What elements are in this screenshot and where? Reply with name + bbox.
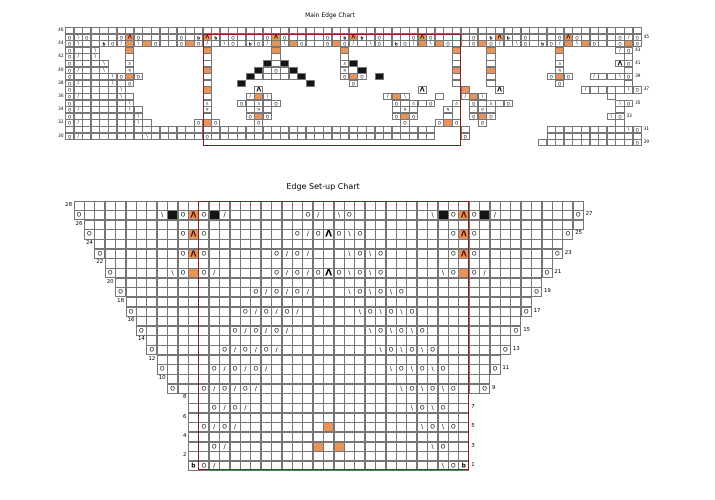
grid-cell-knit (250, 461, 261, 471)
row-number-9: 9 (492, 384, 495, 394)
yarn-over-icon: O (324, 41, 331, 48)
yarn-over-icon: O (479, 120, 486, 127)
grid-cell-knit (240, 461, 251, 471)
row-number-11: 11 (502, 364, 509, 374)
k2tog-icon: / (591, 74, 598, 81)
grid-cell-yarn-over: O (134, 73, 143, 80)
grid-cell-yarn-over: O (263, 113, 272, 120)
bobble-icon: b (393, 41, 400, 48)
row-number-8: 8 (183, 393, 186, 403)
grid-cell-bobble: b (458, 461, 469, 471)
grid-cell-yarn-over: O (490, 364, 501, 374)
grid-cell-yarn-over: O (552, 249, 563, 259)
yarn-over-icon: O (109, 41, 116, 48)
row-number-5: 5 (471, 422, 474, 432)
k2tog-icon: / (384, 94, 391, 101)
grid-cell-yarn-over: O (531, 287, 542, 297)
row-number-39: 39 (635, 73, 640, 80)
grid-cell-knit (426, 133, 435, 140)
yarn-over-icon: O (556, 80, 563, 87)
k2tog-icon: / (616, 47, 623, 54)
k2tog-icon: / (210, 461, 219, 471)
grid-cell-k2tog: / (209, 461, 220, 471)
yarn-over-icon: O (152, 41, 159, 48)
row-number-23: 23 (565, 249, 572, 259)
yarn-over-icon: O (393, 113, 400, 120)
yarn-over-icon: O (543, 268, 552, 278)
yarn-over-icon: O (480, 384, 489, 394)
row-number-22: 22 (96, 258, 103, 268)
grid-cell-yarn-over: O (500, 345, 511, 355)
grid-cell-no-stitch-black (306, 80, 315, 87)
row-number-38: 38 (58, 80, 63, 87)
yarn-over-icon: O (444, 41, 451, 48)
grid-cell-yarn-over: O (542, 268, 553, 278)
grid-cell-yarn-over: O (555, 80, 564, 87)
yarn-over-icon: O (548, 41, 555, 48)
bobble-icon: b (539, 41, 546, 48)
row-number-3: 3 (471, 442, 474, 452)
row-number-37: 37 (644, 86, 649, 93)
yarn-over-icon: O (505, 100, 512, 107)
ssk-icon: \ (513, 41, 520, 48)
grid-cell-knit (344, 461, 355, 471)
row-number-32: 32 (58, 119, 63, 126)
grid-cell-knit (365, 461, 376, 471)
grid-cell-knit (292, 461, 303, 471)
yarn-over-icon: O (272, 100, 279, 107)
yarn-over-icon: O (470, 113, 477, 120)
grid-cell-yarn-over: O (271, 100, 280, 107)
yarn-over-icon: O (247, 113, 254, 120)
yarn-over-icon: O (341, 74, 348, 81)
yarn-over-icon: O (487, 113, 494, 120)
yarn-over-icon: O (565, 74, 572, 81)
grid-cell-knit (354, 461, 365, 471)
grid-cell-gather-top: Δ (452, 100, 461, 107)
row-number-34: 34 (58, 106, 63, 113)
yarn-over-icon: O (401, 41, 408, 48)
row-number-35: 35 (635, 100, 640, 107)
grid-cell-bobble: b (188, 461, 199, 471)
grid-cell-knit (435, 93, 444, 100)
grid-cell-knit (386, 461, 397, 471)
grid-cell-yarn-over: O (409, 113, 418, 120)
yarn-over-icon: O (470, 41, 477, 48)
bobble-icon: b (100, 41, 107, 48)
yarn-over-icon: O (410, 113, 417, 120)
row-number-40: 40 (58, 67, 63, 74)
grid-cell-yarn-over: O (167, 384, 178, 394)
ssk-icon: \ (439, 461, 448, 471)
grid-cell-knit (406, 461, 417, 471)
grid-cell-no-stitch-black (375, 73, 384, 80)
row-number-7: 7 (471, 403, 474, 413)
grid-cell-yarn-over: O (562, 229, 573, 239)
grid-cell-knit (302, 461, 313, 471)
yarn-over-icon: O (522, 307, 531, 317)
yarn-over-icon: O (376, 41, 383, 48)
edge-setup-chart: 28O\OΛO/O/\O\OΛO/O2726OOΛOO/OΛO\OOΛOO252… (74, 201, 584, 471)
yarn-over-icon: O (522, 41, 529, 48)
yarn-over-icon: O (178, 41, 185, 48)
grid-cell-yarn-over: O (633, 139, 642, 146)
row-number-24: 24 (86, 239, 93, 249)
grid-cell-yarn-over: O (349, 80, 358, 87)
setup-chart-title: Edge Set-up Chart (286, 182, 359, 191)
row-number-30: 30 (58, 133, 63, 140)
yarn-over-icon: O (264, 113, 271, 120)
row-number-18: 18 (117, 297, 124, 307)
row-number-27: 27 (586, 210, 593, 220)
row-number-2: 2 (183, 451, 186, 461)
row-number-45: 45 (644, 34, 649, 41)
central-double-decrease-icon: Λ (616, 61, 623, 68)
yarn-over-icon: O (358, 74, 365, 81)
grid-cell-knit (219, 461, 230, 471)
bobble-icon: b (459, 461, 468, 471)
k2tog-icon: / (410, 41, 417, 48)
row-number-43: 43 (635, 47, 640, 54)
yarn-over-icon: O (204, 133, 211, 140)
ssk-icon: \ (221, 41, 228, 48)
yarn-over-icon: O (491, 365, 500, 375)
main-chart-title: Main Edge Chart (305, 12, 355, 19)
yarn-over-icon: O (238, 100, 245, 107)
k2tog-icon: / (582, 87, 589, 94)
grid-cell-yarn-over: O (510, 326, 521, 336)
ssk-icon: \ (573, 41, 580, 48)
row-number-17: 17 (534, 307, 541, 317)
grid-cell-knit (396, 461, 407, 471)
yarn-over-icon: O (563, 230, 572, 240)
bobble-icon: b (247, 41, 254, 48)
row-number-28: 28 (65, 201, 72, 211)
ssk-icon: \ (367, 41, 374, 48)
grid-cell-yarn-over: O (564, 73, 573, 80)
grid-cell-yarn-over: O (125, 80, 134, 87)
grid-cell-knit (427, 461, 438, 471)
ssk-icon: \ (281, 41, 288, 48)
grid-cell-knit (469, 384, 480, 394)
yarn-over-icon: O (255, 41, 262, 48)
central-double-decrease-icon: Λ (496, 87, 503, 94)
yarn-over-icon: O (462, 133, 469, 140)
yarn-over-icon: O (591, 41, 598, 48)
grid-cell-yarn-over: O (504, 100, 513, 107)
row-number-25: 25 (575, 229, 582, 239)
grid-cell-knit (282, 461, 293, 471)
yarn-over-icon: O (511, 326, 520, 336)
grid-cell-knit (323, 461, 334, 471)
grid-cell-knit (334, 461, 345, 471)
grid-cell-yarn-over: O (448, 461, 459, 471)
row-number-46: 46 (58, 27, 63, 34)
page: Main Edge Chart Edge Set-up Chart 46O\OO… (0, 0, 715, 500)
row-number-42: 42 (58, 53, 63, 60)
row-number-31: 31 (644, 126, 649, 133)
row-number-36: 36 (58, 93, 63, 100)
row-number-6: 6 (183, 413, 186, 423)
grid-cell-yarn-over: O (486, 113, 495, 120)
k2tog-icon: / (118, 41, 125, 48)
yarn-over-icon: O (436, 120, 443, 127)
yarn-over-icon: O (195, 41, 202, 48)
yarn-over-icon: O (532, 288, 541, 298)
grid-cell-central-double-decrease: Λ (418, 86, 427, 93)
yarn-over-icon: O (453, 120, 460, 127)
grid-cell-yarn-over: O (478, 119, 487, 126)
row-number-29: 29 (644, 139, 649, 146)
ssk-icon: \ (427, 41, 434, 48)
grid-cell-yarn-over: O (521, 307, 532, 317)
grid-cell-central-double-decrease: Λ (495, 86, 504, 93)
row-number-41: 41 (635, 60, 640, 67)
k2tog-icon: / (462, 94, 469, 101)
yarn-over-icon: O (350, 80, 357, 87)
ssk-icon: \ (135, 41, 142, 48)
row-number-13: 13 (513, 345, 520, 355)
grid-cell-knit (230, 461, 241, 471)
grid-cell-no-stitch-black (237, 80, 246, 87)
central-double-decrease-icon: Λ (419, 87, 426, 94)
yarn-over-icon: O (501, 345, 510, 355)
row-number-19: 19 (544, 287, 551, 297)
ssk-icon: \ (616, 74, 623, 81)
yarn-over-icon: O (634, 87, 641, 94)
row-number-26: 26 (76, 220, 83, 230)
row-number-33: 33 (627, 113, 632, 120)
grid-cell-yarn-over: O (633, 86, 642, 93)
grid-cell-knit (271, 461, 282, 471)
k2tog-icon: / (350, 41, 357, 48)
bobble-icon: b (189, 461, 198, 471)
grid-cell-yarn-over: O (479, 384, 490, 394)
yarn-over-icon: O (625, 100, 632, 107)
grid-cell-knit (261, 461, 272, 471)
ssk-icon: \ (625, 87, 632, 94)
yarn-over-icon: O (548, 74, 555, 81)
row-number-44: 44 (58, 40, 63, 47)
yarn-over-icon: O (126, 80, 133, 87)
k2tog-icon: / (75, 133, 82, 140)
ssk-icon: \ (608, 113, 615, 120)
row-number-4: 4 (183, 432, 186, 442)
grid-cell-yarn-over: O (198, 461, 209, 471)
yarn-over-icon: O (427, 100, 434, 107)
yarn-over-icon: O (229, 41, 236, 48)
grid-cell-yarn-over: O (426, 100, 435, 107)
row-number-20: 20 (107, 278, 114, 288)
row-number-14: 14 (138, 335, 145, 345)
ssk-icon: \ (143, 133, 150, 140)
grid-cell-knit (417, 461, 428, 471)
row-number-10: 10 (159, 374, 166, 384)
yarn-over-icon: O (298, 41, 305, 48)
yarn-over-icon: O (449, 461, 458, 471)
row-number-21: 21 (554, 268, 561, 278)
k2tog-icon: / (264, 41, 271, 48)
k2tog-icon: / (496, 41, 503, 48)
row-number-12: 12 (148, 355, 155, 365)
grid-cell-yarn-over: O (624, 100, 633, 107)
grid-cell-yarn-over: O (461, 133, 470, 140)
gather-top-icon: Δ (453, 100, 460, 107)
main-edge-chart: 46O\OOΛOObΛbOOΛOObΛbOOΛOObΛbOOΛOO/O45O\b… (65, 27, 641, 146)
yarn-over-icon: O (634, 140, 641, 147)
yarn-over-icon: O (168, 384, 177, 394)
grid-cell-yarn-over: O (357, 73, 366, 80)
row-number-1: 1 (471, 461, 474, 471)
grid-cell-knit (375, 461, 386, 471)
yarn-over-icon: O (199, 461, 208, 471)
grid-cell-knit (313, 461, 324, 471)
row-number-16: 16 (128, 316, 135, 326)
grid-cell-ssk: \ (438, 461, 449, 471)
yarn-over-icon: O (66, 133, 73, 140)
yarn-over-icon: O (553, 249, 562, 259)
row-number-15: 15 (523, 326, 530, 336)
yarn-over-icon: O (135, 74, 142, 81)
